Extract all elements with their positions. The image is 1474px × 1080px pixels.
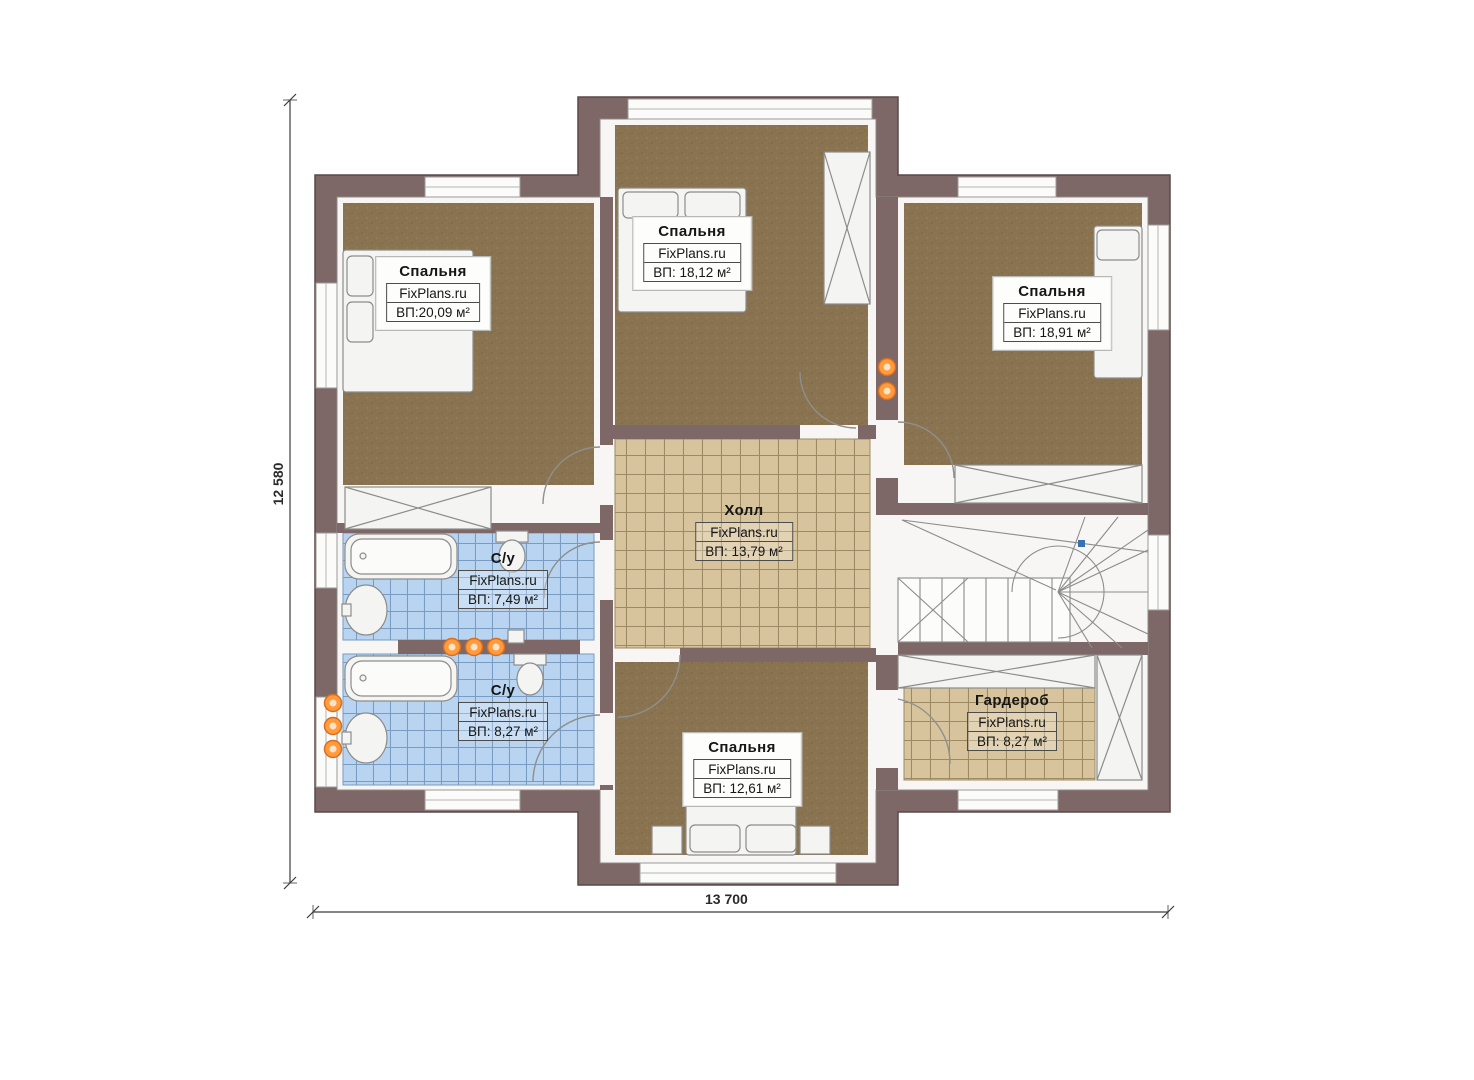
room-name: Холл (695, 502, 793, 519)
radiator-dot (444, 639, 461, 656)
window (958, 177, 1056, 197)
window (1148, 535, 1169, 610)
room-area: ВП: 7,49 м² (459, 590, 547, 608)
bathtub (345, 534, 457, 579)
wardrobe-unit (824, 152, 870, 304)
room-name: Гардероб (967, 692, 1057, 709)
paper-holder (508, 630, 524, 643)
room-name: Спальня (386, 263, 480, 280)
stair-marker (1078, 540, 1085, 547)
radiator-dot (879, 383, 896, 400)
room-area: ВП: 18,91 м² (1004, 323, 1100, 341)
wardrobe-unit (1097, 655, 1142, 780)
window (1148, 225, 1169, 330)
room-area: ВП: 13,79 м² (696, 542, 792, 560)
room-name: Спальня (643, 223, 741, 240)
room-label-bathroom-1: С/у FixPlans.ru ВП: 7,49 м² (458, 550, 548, 609)
radiator-dot (325, 718, 342, 735)
brand-watermark: FixPlans.ru (696, 523, 792, 542)
window (316, 283, 337, 388)
room-area: ВП: 18,12 м² (644, 263, 740, 281)
room-label-bedroom-top-left: Спальня FixPlans.ru ВП:20,09 м² (375, 256, 491, 331)
room-name: С/у (458, 682, 548, 699)
brand-watermark: FixPlans.ru (968, 713, 1056, 732)
window (958, 790, 1058, 810)
radiator-dot (488, 639, 505, 656)
window (640, 863, 836, 883)
wardrobe-unit (955, 465, 1142, 503)
wardrobe-unit (898, 655, 1095, 688)
radiator-dot (325, 695, 342, 712)
brand-watermark: FixPlans.ru (694, 760, 790, 779)
room-name: Спальня (1003, 283, 1101, 300)
dimension-height: 12 580 (270, 444, 286, 524)
room-label-bedroom-top-right: Спальня FixPlans.ru ВП: 18,91 м² (992, 276, 1112, 351)
room-label-hall: Холл FixPlans.ru ВП: 13,79 м² (695, 502, 793, 561)
brand-watermark: FixPlans.ru (644, 244, 740, 263)
room-label-wardrobe: Гардероб FixPlans.ru ВП: 8,27 м² (967, 692, 1057, 751)
brand-watermark: FixPlans.ru (459, 703, 547, 722)
dimension-width: 13 700 (705, 891, 748, 907)
wardrobe-unit (345, 487, 491, 529)
floor-plan-canvas: Спальня FixPlans.ru ВП:20,09 м² Спальня … (0, 0, 1474, 1080)
room-area: ВП: 12,61 м² (694, 779, 790, 797)
brand-watermark: FixPlans.ru (1004, 304, 1100, 323)
brand-watermark: FixPlans.ru (387, 284, 479, 303)
bathtub (345, 656, 457, 701)
window (425, 177, 520, 197)
brand-watermark: FixPlans.ru (459, 571, 547, 590)
room-name: Спальня (693, 739, 791, 756)
radiator-dot (325, 741, 342, 758)
window (316, 533, 337, 588)
room-label-bathroom-2: С/у FixPlans.ru ВП: 8,27 м² (458, 682, 548, 741)
radiator-dot (466, 639, 483, 656)
window (628, 99, 872, 119)
room-area: ВП:20,09 м² (387, 303, 479, 321)
nightstand (652, 826, 682, 854)
nightstand (800, 826, 830, 854)
room-label-bedroom-top-middle: Спальня FixPlans.ru ВП: 18,12 м² (632, 216, 752, 291)
room-name: С/у (458, 550, 548, 567)
room-area: ВП: 8,27 м² (968, 732, 1056, 750)
radiator-dot (879, 359, 896, 376)
room-area: ВП: 8,27 м² (459, 722, 547, 740)
room-label-bedroom-bottom: Спальня FixPlans.ru ВП: 12,61 м² (682, 732, 802, 807)
window (425, 790, 520, 810)
